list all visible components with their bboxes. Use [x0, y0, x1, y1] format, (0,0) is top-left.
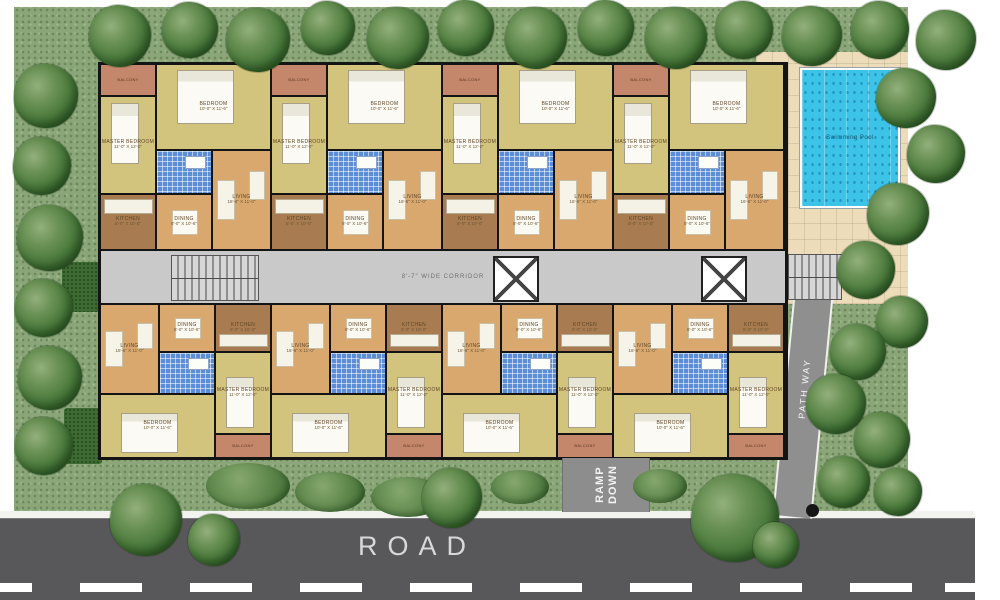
room-dining: DINING8'-0" X 10'-6" [499, 195, 553, 249]
tree-icon [13, 137, 71, 195]
room-bedroom: BEDROOM10'-0" X 11'-6" [272, 395, 385, 457]
room-dining: DINING8'-0" X 10'-6" [331, 305, 385, 351]
room-dining: DINING8'-0" X 10'-6" [160, 305, 214, 351]
room-dimensions: 11'-0" X 12'-0" [571, 393, 599, 398]
room-kitchen: KITCHEN8'-0" X 10'-0" [272, 195, 326, 249]
staircase-right [788, 254, 842, 300]
tree-icon [15, 279, 73, 337]
room-balcony: BALCONY [216, 435, 270, 457]
room-living: LIVING16'-6" X 11'-0" [443, 305, 500, 393]
room-dimensions: 16'-6" X 11'-0" [398, 200, 426, 205]
room-kitchen: KITCHEN8'-0" X 10'-0" [614, 195, 668, 249]
room-bedroom: BEDROOM10'-0" X 11'-6" [614, 395, 727, 457]
room-dimensions: 8'-0" X 10'-0" [628, 222, 654, 227]
room-balcony: BALCONY [387, 435, 441, 457]
room-dimensions: 16'-6" X 11'-0" [740, 200, 768, 205]
room-dimensions: 10'-0" X 11'-6" [143, 426, 171, 431]
room-toilet [328, 151, 382, 193]
unit-4: BALCONYMASTER BEDROOM11'-0" X 12'-0"BEDR… [614, 65, 783, 249]
room-dimensions: 11'-0" X 12'-0" [456, 145, 484, 150]
room-living: LIVING16'-6" X 11'-0" [614, 305, 671, 393]
corridor-label: 8'-7" WIDE CORRIDOR [402, 274, 485, 280]
room-living: LIVING16'-6" X 11'-0" [213, 151, 270, 249]
room-bedroom: BEDROOM10'-0" X 11'-6" [443, 395, 556, 457]
room-dimensions: 8'-0" X 10'-0" [230, 328, 256, 333]
room-dimensions: 8'-0" X 10'-6" [174, 328, 200, 333]
tree-icon [505, 7, 567, 69]
room-dimensions: 10'-0" X 11'-6" [199, 107, 227, 112]
tree-icon [15, 417, 73, 475]
room-master-bedroom: MASTER BEDROOM11'-0" X 12'-0" [272, 97, 326, 193]
room-kitchen: KITCHEN8'-0" X 10'-0" [387, 305, 441, 351]
room-balcony: BALCONY [558, 435, 612, 457]
site-plan: Swimming Pool PATH WAY BALCONYMASTER BED… [0, 0, 1000, 600]
room-living: LIVING16'-6" X 11'-0" [384, 151, 441, 249]
road-label: ROAD [358, 531, 476, 562]
room-dimensions: 10'-0" X 11'-6" [712, 107, 740, 112]
room-balcony: BALCONY [443, 65, 497, 95]
room-dimensions: 8'-0" X 10'-0" [572, 328, 598, 333]
room-dimensions: 11'-0" X 12'-0" [114, 145, 142, 150]
room-toilet [502, 353, 556, 393]
room-master-bedroom: MASTER BEDROOM11'-0" X 12'-0" [101, 97, 155, 193]
room-dimensions: 10'-0" X 11'-6" [656, 426, 684, 431]
bush-icon [295, 472, 365, 512]
elevator [493, 256, 539, 302]
room-dimensions: 10'-0" X 11'-6" [370, 107, 398, 112]
tree-icon [854, 412, 910, 468]
tree-icon [188, 514, 240, 566]
room-label: BALCONY [232, 444, 253, 449]
room-dimensions: 11'-0" X 12'-0" [742, 393, 770, 398]
tree-icon [367, 7, 429, 69]
room-living: LIVING16'-6" X 11'-0" [726, 151, 783, 249]
tree-icon [110, 484, 182, 556]
room-dimensions: 16'-6" X 11'-0" [457, 349, 485, 354]
room-dimensions: 11'-0" X 12'-0" [627, 145, 655, 150]
tree-icon [162, 2, 218, 58]
tree-icon [916, 10, 976, 70]
room-dimensions: 11'-0" X 12'-0" [400, 393, 428, 398]
room-dimensions: 10'-0" X 11'-6" [485, 426, 513, 431]
tree-icon [422, 468, 482, 528]
tree-icon [645, 7, 707, 69]
room-living: LIVING16'-6" X 11'-0" [101, 305, 158, 393]
room-dimensions: 8'-0" X 10'-6" [513, 222, 539, 227]
road-centerline [0, 583, 975, 592]
tree-icon [818, 456, 870, 508]
room-living: LIVING16'-6" X 11'-0" [555, 151, 612, 249]
room-bedroom: BEDROOM10'-0" X 11'-6" [670, 65, 783, 149]
room-living: LIVING16'-6" X 11'-0" [272, 305, 329, 393]
room-label: BALCONY [403, 444, 424, 449]
room-dimensions: 8'-0" X 10'-0" [115, 222, 141, 227]
room-dining: DINING8'-0" X 10'-6" [328, 195, 382, 249]
unit-1: BALCONYMASTER BEDROOM11'-0" X 12'-0"BEDR… [101, 65, 270, 249]
room-dining: DINING8'-0" X 10'-6" [157, 195, 211, 249]
tree-icon [830, 324, 886, 380]
room-dimensions: 16'-6" X 11'-0" [115, 349, 143, 354]
room-toilet [673, 353, 727, 393]
room-label: BALCONY [459, 78, 480, 83]
tree-icon [876, 68, 936, 128]
room-label: BALCONY [574, 444, 595, 449]
tree-icon [438, 0, 494, 56]
tree-icon [837, 241, 895, 299]
room-kitchen: KITCHEN8'-0" X 10'-0" [101, 195, 155, 249]
room-dimensions: 8'-0" X 10'-6" [342, 222, 368, 227]
unit-6: BALCONYMASTER BEDROOM11'-0" X 12'-0"BEDR… [272, 305, 441, 457]
room-dimensions: 16'-6" X 11'-0" [569, 200, 597, 205]
room-master-bedroom: MASTER BEDROOM11'-0" X 12'-0" [614, 97, 668, 193]
room-dimensions: 10'-0" X 11'-6" [314, 426, 342, 431]
room-balcony: BALCONY [272, 65, 326, 95]
unit-8: BALCONYMASTER BEDROOM11'-0" X 12'-0"BEDR… [614, 305, 783, 457]
tree-icon [578, 0, 634, 56]
corridor: 8'-7" WIDE CORRIDOR [101, 251, 785, 303]
tree-icon [867, 183, 929, 245]
room-bedroom: BEDROOM10'-0" X 11'-6" [157, 65, 270, 149]
tree-icon [301, 1, 355, 55]
ramp-label-line1: RAMP [593, 466, 606, 505]
room-dimensions: 8'-0" X 10'-0" [457, 222, 483, 227]
room-master-bedroom: MASTER BEDROOM11'-0" X 12'-0" [558, 353, 612, 433]
apartment-building: BALCONYMASTER BEDROOM11'-0" X 12'-0"BEDR… [98, 62, 788, 460]
room-kitchen: KITCHEN8'-0" X 10'-0" [443, 195, 497, 249]
room-dining: DINING8'-0" X 10'-6" [502, 305, 556, 351]
tree-icon [874, 468, 922, 516]
room-label: BALCONY [288, 78, 309, 83]
room-balcony: BALCONY [729, 435, 783, 457]
room-toilet [331, 353, 385, 393]
room-dimensions: 16'-6" X 11'-0" [628, 349, 656, 354]
room-bedroom: BEDROOM10'-0" X 11'-6" [328, 65, 441, 149]
room-dimensions: 8'-0" X 10'-6" [684, 222, 710, 227]
tree-icon [782, 6, 842, 66]
tree-icon [851, 1, 909, 59]
room-label: BALCONY [630, 78, 651, 83]
room-kitchen: KITCHEN8'-0" X 10'-0" [558, 305, 612, 351]
room-master-bedroom: MASTER BEDROOM11'-0" X 12'-0" [729, 353, 783, 433]
room-master-bedroom: MASTER BEDROOM11'-0" X 12'-0" [443, 97, 497, 193]
unit-2: BALCONYMASTER BEDROOM11'-0" X 12'-0"BEDR… [272, 65, 441, 249]
room-master-bedroom: MASTER BEDROOM11'-0" X 12'-0" [216, 353, 270, 433]
room-dimensions: 8'-0" X 10'-0" [286, 222, 312, 227]
room-dimensions: 8'-0" X 10'-0" [401, 328, 427, 333]
tree-icon [907, 125, 965, 183]
room-dining: DINING8'-0" X 10'-6" [673, 305, 727, 351]
room-toilet [160, 353, 214, 393]
room-dimensions: 8'-0" X 10'-6" [171, 222, 197, 227]
room-master-bedroom: MASTER BEDROOM11'-0" X 12'-0" [387, 353, 441, 433]
staircase-left [171, 255, 259, 301]
ramp-label: RAMP DOWN [593, 466, 618, 505]
unit-7: BALCONYMASTER BEDROOM11'-0" X 12'-0"BEDR… [443, 305, 612, 457]
unit-5: BALCONYMASTER BEDROOM11'-0" X 12'-0"BEDR… [101, 305, 270, 457]
room-balcony: BALCONY [614, 65, 668, 95]
room-dimensions: 8'-0" X 10'-6" [687, 328, 713, 333]
tree-icon [715, 1, 773, 59]
room-dimensions: 10'-0" X 11'-6" [541, 107, 569, 112]
bush-icon [633, 469, 687, 503]
tree-icon [17, 205, 83, 271]
room-dimensions: 8'-0" X 10'-6" [516, 328, 542, 333]
room-toilet [670, 151, 724, 193]
pool-label: Swimming Pool [826, 135, 874, 141]
tree-icon [226, 8, 290, 72]
room-toilet [157, 151, 211, 193]
tree-icon [18, 346, 82, 410]
room-toilet [499, 151, 553, 193]
room-dimensions: 16'-6" X 11'-0" [227, 200, 255, 205]
room-kitchen: KITCHEN8'-0" X 10'-0" [729, 305, 783, 351]
tree-icon [89, 5, 151, 67]
room-label: BALCONY [745, 444, 766, 449]
tree-icon [14, 64, 78, 128]
room-dimensions: 8'-0" X 10'-6" [345, 328, 371, 333]
elevator [701, 256, 747, 302]
bush-icon [491, 470, 549, 504]
room-dimensions: 16'-6" X 11'-0" [286, 349, 314, 354]
bush-icon [206, 463, 290, 509]
pathway-end-dot [806, 504, 819, 517]
room-balcony: BALCONY [101, 65, 155, 95]
room-bedroom: BEDROOM10'-0" X 11'-6" [101, 395, 214, 457]
room-dining: DINING8'-0" X 10'-6" [670, 195, 724, 249]
room-bedroom: BEDROOM10'-0" X 11'-6" [499, 65, 612, 149]
room-label: BALCONY [117, 78, 138, 83]
room-kitchen: KITCHEN8'-0" X 10'-0" [216, 305, 270, 351]
ramp-label-line2: DOWN [606, 466, 619, 505]
room-dimensions: 11'-0" X 12'-0" [229, 393, 257, 398]
room-dimensions: 8'-0" X 10'-0" [743, 328, 769, 333]
tree-icon [753, 522, 799, 568]
unit-3: BALCONYMASTER BEDROOM11'-0" X 12'-0"BEDR… [443, 65, 612, 249]
room-dimensions: 11'-0" X 12'-0" [285, 145, 313, 150]
